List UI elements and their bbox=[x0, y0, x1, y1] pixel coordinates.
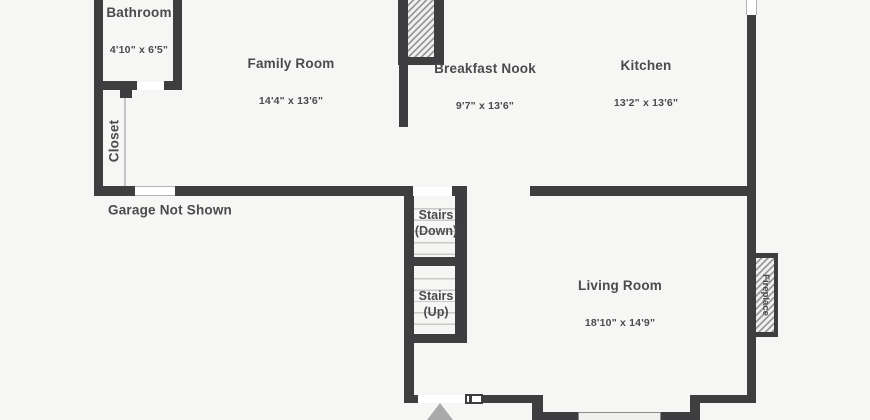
wall-segment bbox=[120, 90, 132, 98]
wall-segment bbox=[164, 81, 182, 90]
garage-note: Garage Not Shown bbox=[108, 180, 232, 239]
wall-segment bbox=[404, 334, 467, 343]
room-label-bathroom: Bathroom 4'10" x 6'5" bbox=[106, 0, 171, 79]
fireplace-label: Fireplace bbox=[759, 274, 771, 316]
wall-segment bbox=[94, 81, 137, 90]
room-dims: 13'2" x 13'6" bbox=[614, 97, 678, 111]
wall-segment bbox=[543, 412, 578, 420]
room-dims: 18'10" x 14'9" bbox=[578, 317, 662, 331]
wall-segment bbox=[404, 257, 467, 266]
room-dims: 9'7" x 13'6" bbox=[434, 100, 536, 114]
door-leaf bbox=[469, 396, 472, 402]
room-name: Bathroom bbox=[106, 4, 171, 22]
wall-segment bbox=[690, 395, 756, 403]
door-opening bbox=[137, 82, 164, 90]
room-name: Living Room bbox=[578, 277, 662, 295]
door-symbol bbox=[465, 394, 483, 404]
wall-segment bbox=[532, 395, 543, 420]
wall-segment bbox=[404, 395, 418, 403]
room-name: Closet bbox=[105, 120, 123, 162]
chimney-hatch bbox=[408, 0, 434, 57]
room-name: Kitchen bbox=[614, 57, 678, 75]
north-arrow-icon bbox=[427, 403, 453, 420]
chimney-wall bbox=[398, 0, 408, 65]
stairs-down-label: Stairs (Down) bbox=[415, 207, 457, 240]
window-symbol bbox=[578, 412, 661, 420]
wall-segment bbox=[404, 196, 414, 403]
wall-segment bbox=[173, 0, 182, 90]
wall-segment bbox=[94, 0, 103, 196]
room-label-closet: Closet bbox=[84, 120, 143, 162]
room-dims: 14'4" x 13'6" bbox=[248, 95, 335, 109]
floor-plan: Bathroom 4'10" x 6'5" Closet Family Room… bbox=[0, 0, 870, 420]
room-label-kitchen: Kitchen 13'2" x 13'6" bbox=[614, 36, 678, 132]
wall-segment bbox=[399, 65, 408, 127]
wall-segment bbox=[452, 186, 467, 196]
wall-segment bbox=[530, 186, 756, 196]
stairs-opening bbox=[414, 187, 452, 196]
window-symbol bbox=[746, 0, 757, 15]
room-label-living-room: Living Room 18'10" x 14'9" bbox=[578, 256, 662, 352]
door-opening bbox=[418, 395, 465, 403]
room-name: Family Room bbox=[248, 55, 335, 73]
stairs-up-label: Stairs (Up) bbox=[419, 288, 454, 321]
room-label-family-room: Family Room 14'4" x 13'6" bbox=[248, 34, 335, 130]
wall-segment bbox=[747, 0, 756, 403]
room-label-breakfast-nook: Breakfast Nook 9'7" x 13'6" bbox=[434, 39, 536, 135]
room-dims: 4'10" x 6'5" bbox=[106, 44, 171, 58]
room-name: Breakfast Nook bbox=[434, 60, 536, 78]
